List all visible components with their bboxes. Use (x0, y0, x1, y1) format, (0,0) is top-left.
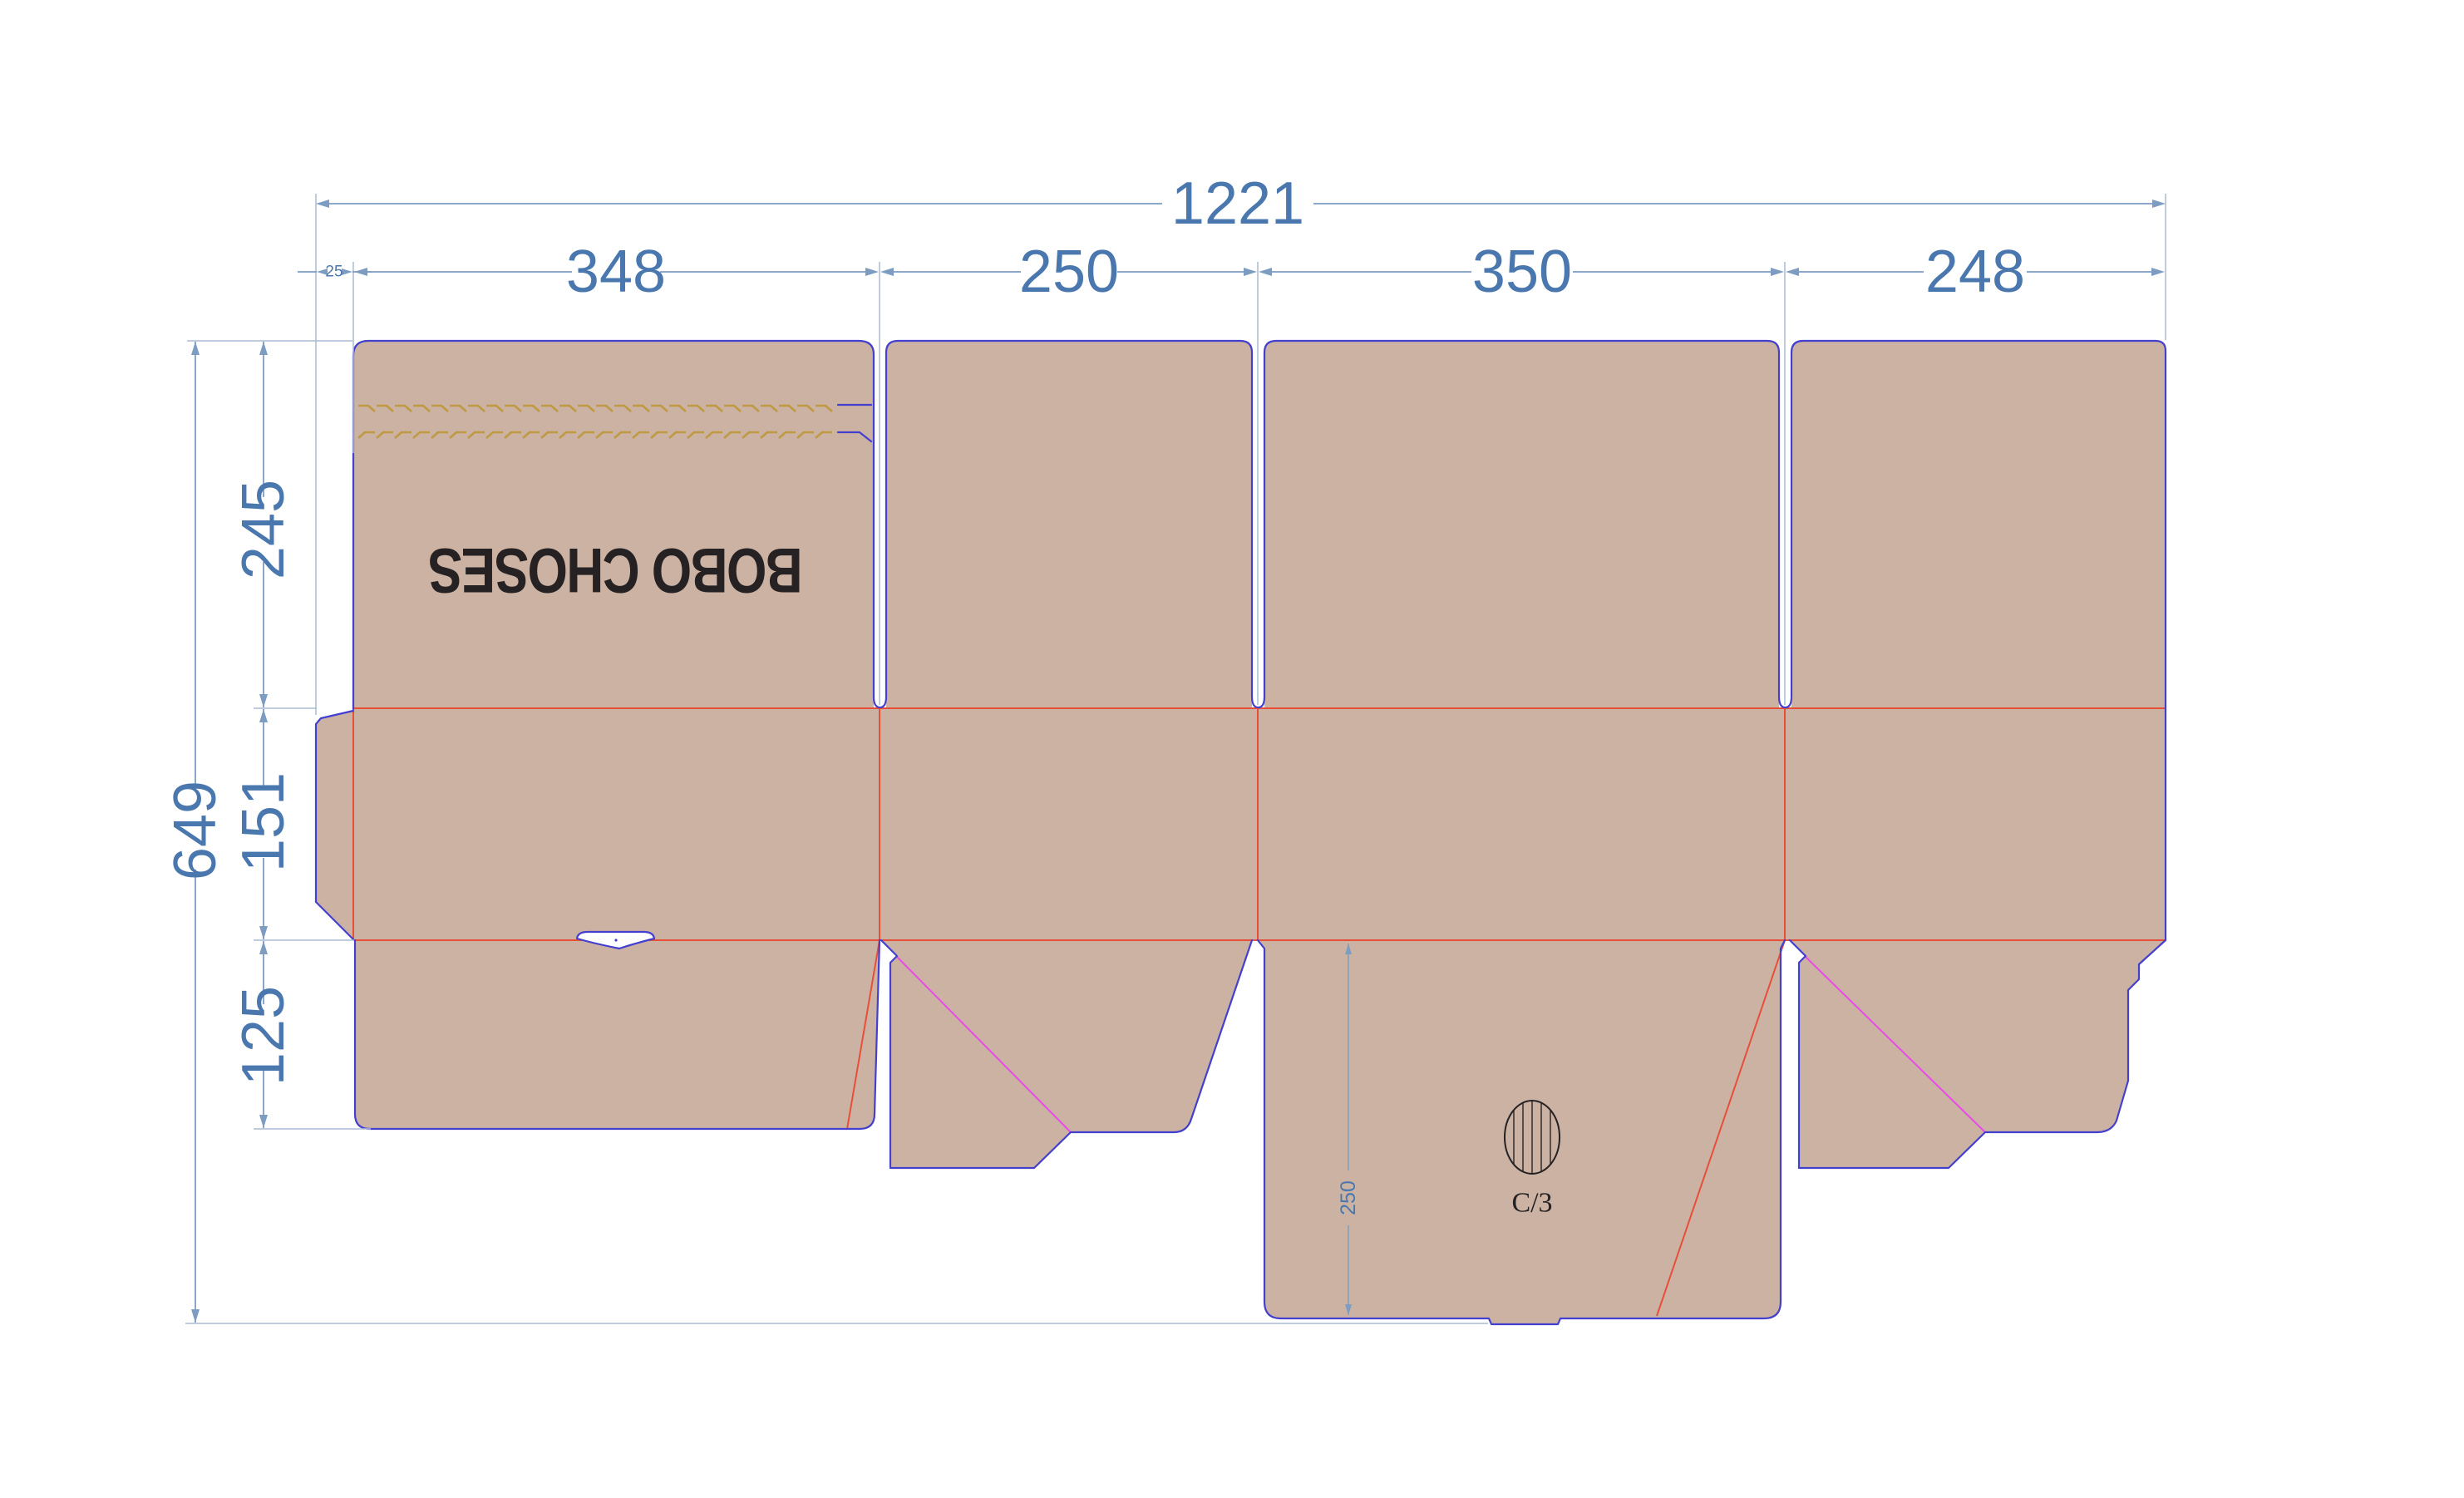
dim-arrow (1786, 268, 1799, 276)
dim-label-panel-2: 250 (1019, 239, 1119, 305)
dim-label-total-width: 1221 (1171, 170, 1304, 237)
dim-label-panel-3: 350 (1472, 239, 1572, 305)
top-flap-2-fill (886, 341, 1252, 709)
dim-arrow (259, 941, 268, 954)
dim-arrow (1259, 268, 1272, 276)
top-flap-1-fill (353, 341, 874, 709)
panel-fills (316, 341, 2166, 1324)
dim-arrow (191, 342, 200, 355)
dim-label-panel-1: 348 (566, 239, 666, 305)
dim-label-lock-flap: 250 (1337, 1180, 1360, 1215)
dim-arrow (1771, 268, 1784, 276)
dim-arrow (259, 342, 268, 355)
dim-arrow (259, 694, 268, 707)
top-flap-3-fill (1264, 341, 1779, 709)
dim-label-glue-tab: 25 (325, 264, 342, 281)
bottom-flap-1-fill (355, 940, 880, 1129)
dim-arrow (880, 268, 894, 276)
dim-arrow (2152, 200, 2166, 208)
dim-arrow (191, 1309, 200, 1323)
dim-arrow (259, 926, 268, 939)
dieline-drawing-canvas: BOBO CHOSES C/3 (0, 0, 2464, 1498)
dim-arrow (865, 268, 879, 276)
dim-label-row-151: 151 (230, 772, 297, 872)
dim-label-total-height: 649 (162, 781, 229, 880)
bottom-flap-4-fill (1790, 940, 2166, 1168)
dim-arrow (354, 268, 367, 276)
thumb-notch-center-tick (614, 939, 617, 941)
dim-arrow (2151, 268, 2165, 276)
body-row-and-glue-tab-fill (316, 707, 2166, 940)
dim-label-row-245: 245 (230, 480, 297, 579)
dim-arrow (342, 269, 352, 275)
board-grade-label: C/3 (1511, 1188, 1552, 1219)
bottom-lock-flap-fill (1258, 940, 1785, 1324)
brand-text: BOBO CHOSES (429, 535, 802, 605)
dim-label-panel-4: 248 (1925, 239, 2025, 305)
dieline-drawing: BOBO CHOSES C/3 (0, 0, 2464, 1498)
dim-arrow (316, 200, 329, 208)
top-flap-4-fill (1791, 341, 2166, 709)
dim-arrow (259, 1115, 268, 1128)
bottom-flap-2-fill (881, 940, 1252, 1168)
dim-arrow (1244, 268, 1257, 276)
dim-arrow (259, 709, 268, 722)
dim-label-row-125: 125 (230, 986, 297, 1086)
